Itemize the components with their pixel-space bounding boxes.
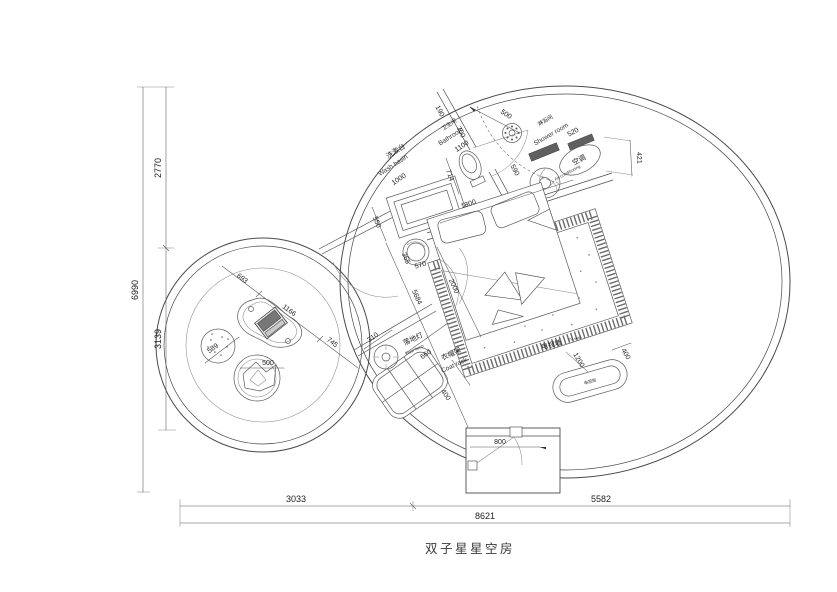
tv-cabinet: 电视柜 <box>549 356 630 406</box>
kidney-table <box>238 298 302 347</box>
dim-door-800: 800 <box>494 439 506 446</box>
dim-5582: 5582 <box>591 494 611 504</box>
dim-2770: 2770 <box>153 158 163 178</box>
dim-1000: 1000 <box>391 173 408 187</box>
dim-6990: 6990 <box>130 280 140 300</box>
dim-745: 745 <box>325 336 339 349</box>
left-dimension-lines: 6990 2770 3139 <box>130 87 176 492</box>
coat-rack <box>368 343 452 423</box>
lounge-room-wall <box>156 238 370 452</box>
shower-head-icon <box>503 124 522 143</box>
dim-3033: 3033 <box>286 494 306 504</box>
dim-1200: 1200 <box>571 352 585 369</box>
entry-vestibule: 800 <box>466 427 560 493</box>
dim-400-coat: 400 <box>439 388 451 402</box>
drawing-title: 双子星星空房 <box>425 541 515 556</box>
dim-190: 190 <box>433 104 445 118</box>
dim-500-chair: 500 <box>262 360 274 367</box>
floor-plan-drawing: 800 <box>0 0 837 592</box>
door-stop-block <box>468 461 477 470</box>
bottom-dimension-lines: 3033 5582 8621 <box>180 494 790 527</box>
floor-lamp-icon <box>374 345 398 369</box>
dim-400-tv: 400 <box>619 347 631 361</box>
dim-310: 310 <box>366 331 380 343</box>
shower-label-cn: 淋浴间 <box>536 113 554 128</box>
dim-5684: 5684 <box>410 289 423 306</box>
dim-590: 590 <box>508 163 520 177</box>
dim-3139: 3139 <box>153 329 163 349</box>
dim-500: 500 <box>499 109 513 121</box>
dim-421: 421 <box>635 152 643 164</box>
toilet-icon <box>455 147 488 188</box>
ac-label-en: Air-conditioning <box>553 163 581 181</box>
dim-8621: 8621 <box>475 511 495 521</box>
door-hinge-block <box>510 427 522 437</box>
floor-plan-canvas: 800 <box>0 0 837 592</box>
dim-693: 693 <box>235 272 249 285</box>
